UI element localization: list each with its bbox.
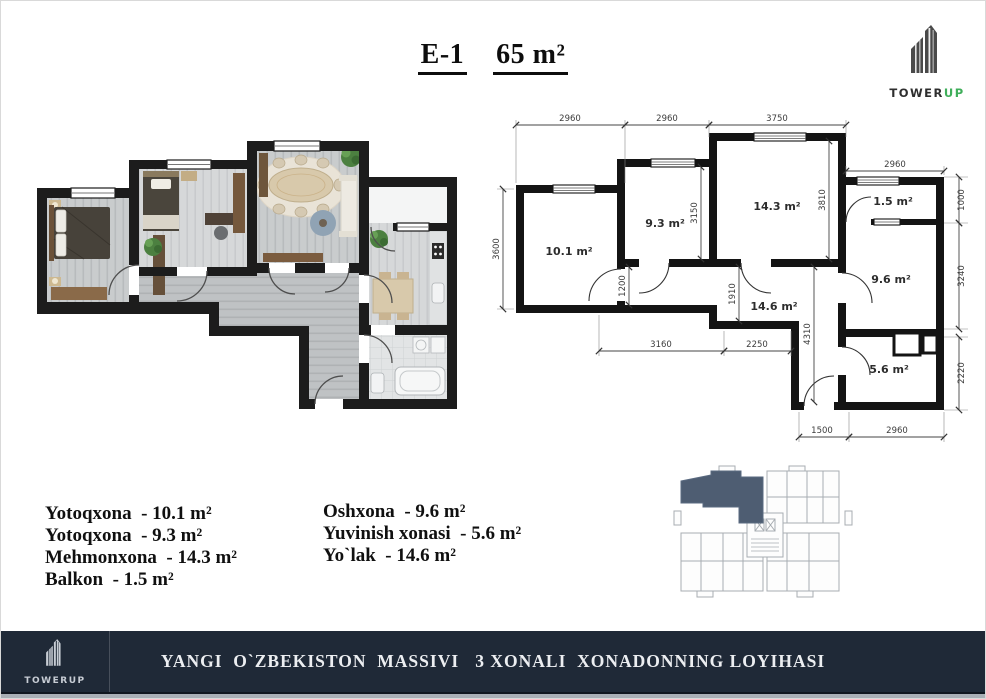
legend-room-name: Balkon xyxy=(45,569,103,590)
legend-item: Yotoqxona - 10.1 m² xyxy=(45,503,237,525)
legend-item: Yuvinish xonasi - 5.6 m² xyxy=(323,523,521,545)
dim-right-2: 3240 xyxy=(957,265,967,287)
technical-floor-plan: 10.1 m² 9.3 m² 14.3 m² 1.5 m² 9.6 m² 14.… xyxy=(489,107,985,452)
poster-page: E-165 m² TOWERUP xyxy=(0,0,986,699)
brand-word-up: UP xyxy=(69,676,86,686)
legend-item: Yo`lak - 14.6 m² xyxy=(323,545,521,567)
footer-caption: YANGI O`ZBEKISTON MASSIVI 3 XONALI XONAD… xyxy=(1,631,985,692)
legend-separator: - xyxy=(395,501,416,522)
dim-inner-bottom-2: 2250 xyxy=(746,340,768,350)
legend-room-name: Mehmonxona xyxy=(45,547,157,568)
legend-item: Oshxona - 9.6 m² xyxy=(323,501,521,523)
legend-room-name: Yuvinish xonasi xyxy=(323,523,451,544)
furnished-floor-plan xyxy=(29,127,471,429)
legend-room-area: 10.1 m² xyxy=(152,503,212,524)
towerup-building-icon xyxy=(900,21,954,79)
legend-separator: - xyxy=(132,503,153,524)
legend-room-area: 9.6 m² xyxy=(415,501,465,522)
plan-total-area: 65 m² xyxy=(493,39,568,75)
room-label-hall: 14.6 m² xyxy=(750,300,797,313)
brand-logo-footer: TOWERUP xyxy=(1,631,110,692)
legend-room-area: 5.6 m² xyxy=(471,523,521,544)
room-label-bedroom2: 9.3 m² xyxy=(645,217,685,230)
dim-v-3150: 3150 xyxy=(690,202,700,224)
room-label-bath: 5.6 m² xyxy=(869,363,909,376)
dim-v-3810: 3810 xyxy=(818,189,828,211)
legend-room-area: 9.3 m² xyxy=(152,525,202,546)
dim-top-3: 3750 xyxy=(766,114,788,124)
towerup-building-icon xyxy=(40,636,70,670)
brand-logo-top: TOWERUP xyxy=(881,21,973,102)
legend-room-name: Yotoqxona xyxy=(45,525,132,546)
room-label-balcony: 1.5 m² xyxy=(873,195,913,208)
legend-room-name: Yo`lak xyxy=(323,545,376,566)
dim-right-1: 1000 xyxy=(957,189,967,211)
dim-bottom-2: 2960 xyxy=(886,426,908,436)
dim-inner-bottom-1: 3160 xyxy=(650,340,672,350)
legend-room-area: 1.5 m² xyxy=(124,569,174,590)
legend-left: Yotoqxona - 10.1 m² Yotoqxona - 9.3 m² M… xyxy=(45,503,237,591)
highlighted-unit xyxy=(681,471,763,523)
legend-separator: - xyxy=(132,525,153,546)
plan-code: E-1 xyxy=(418,39,468,75)
legend-room-name: Oshxona xyxy=(323,501,395,522)
dim-bottom-1: 1500 xyxy=(811,426,833,436)
page-title: E-165 m² xyxy=(1,39,985,75)
brand-word-up: UP xyxy=(944,86,965,100)
dim-v-4310: 4310 xyxy=(803,323,813,345)
room-label-living: 14.3 m² xyxy=(753,200,800,213)
room-label-kitchen: 9.6 m² xyxy=(871,273,911,286)
legend-separator: - xyxy=(157,547,178,568)
legend-item: Yotoqxona - 9.3 m² xyxy=(45,525,237,547)
dim-v-1910: 1910 xyxy=(728,283,738,305)
legend-room-area: 14.6 m² xyxy=(396,545,456,566)
room-label-bedroom1: 10.1 m² xyxy=(545,245,592,258)
legend-room-name: Yotoqxona xyxy=(45,503,132,524)
dim-top-2: 2960 xyxy=(656,114,678,124)
legend-right: Oshxona - 9.6 m² Yuvinish xonasi - 5.6 m… xyxy=(323,501,521,567)
dim-left: 3600 xyxy=(492,238,502,260)
legend-separator: - xyxy=(103,569,124,590)
legend-room-area: 14.3 m² xyxy=(177,547,237,568)
dim-v-1200: 1200 xyxy=(618,275,628,297)
brand-word-tower: TOWER xyxy=(24,676,68,686)
legend-item: Mehmonxona - 14.3 m² xyxy=(45,547,237,569)
dim-right-3: 2220 xyxy=(957,362,967,384)
legend-separator: - xyxy=(451,523,472,544)
legend-item: Balkon - 1.5 m² xyxy=(45,569,237,591)
brand-word-tower: TOWER xyxy=(889,86,944,100)
building-key-plan xyxy=(667,461,859,603)
footer-bar: YANGI O`ZBEKISTON MASSIVI 3 XONALI XONAD… xyxy=(1,631,985,698)
legend-separator: - xyxy=(376,545,397,566)
dim-top-1: 2960 xyxy=(559,114,581,124)
dim-balcony-top: 2960 xyxy=(884,160,906,170)
